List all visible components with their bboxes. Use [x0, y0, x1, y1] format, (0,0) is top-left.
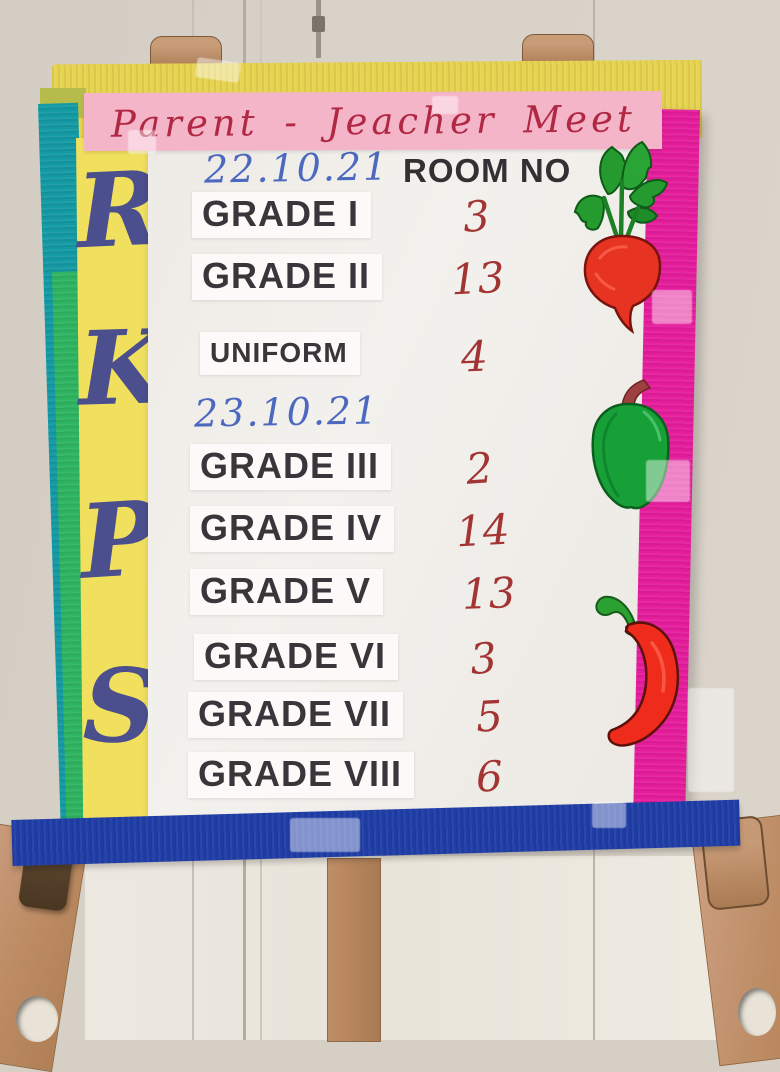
page-title: Parent - Jeacher Meet [110, 97, 635, 145]
room-number: 4 [460, 332, 488, 382]
initial-letter: K [77, 317, 156, 421]
tape-strip [652, 290, 692, 324]
room-number: 14 [455, 505, 511, 557]
schedule-row: GRADE VI 3 [148, 634, 662, 686]
grade-label: GRADE IV [190, 506, 394, 552]
schedule-row: UNIFORM 4 [148, 332, 662, 384]
room-number: 5 [475, 691, 504, 741]
tape-strip [290, 818, 360, 852]
tape-strip [688, 688, 734, 792]
schedule-row: GRADE IV 14 [148, 506, 662, 558]
tape-strip [128, 130, 156, 154]
schedule-row: GRADE VIII 6 [148, 752, 662, 804]
tape-strip [646, 460, 690, 502]
grade-label: GRADE VIII [188, 752, 414, 798]
easel-center-strut [327, 858, 381, 1042]
initial-letter: P [77, 487, 159, 594]
radish-leaf [575, 196, 604, 230]
grade-label: GRADE V [190, 569, 383, 615]
grade-label: GRADE VI [194, 634, 398, 680]
grade-label: UNIFORM [200, 332, 360, 375]
initial-letter: R [74, 158, 155, 263]
initials-strip: R K P S [76, 137, 159, 838]
date-day1: 22.10.21 [204, 144, 390, 191]
tape-strip [432, 96, 458, 114]
scene: R K P S Parent - Jeacher Meet 22.10.21 R… [0, 0, 780, 1040]
grade-label: GRADE VII [188, 692, 403, 738]
schedule-row: GRADE V 13 [148, 569, 662, 621]
schedule-row: GRADE VII 5 [148, 692, 662, 744]
door-hinge-cap [312, 16, 325, 32]
date-day2: 23.10.21 [194, 388, 380, 435]
easel-peg-hole-right [738, 988, 776, 1036]
radish-bulb [585, 236, 660, 331]
chili-icon [590, 583, 692, 751]
room-number: 13 [450, 253, 506, 305]
room-number: 13 [461, 568, 516, 619]
room-number: 3 [461, 191, 491, 242]
door-panel [85, 856, 780, 1040]
grade-label: GRADE II [192, 254, 382, 300]
tape-strip [592, 802, 626, 828]
room-number: 6 [475, 752, 503, 802]
grade-label: GRADE I [192, 192, 371, 238]
grade-label: GRADE III [190, 444, 391, 490]
easel-peg-hole-left [16, 996, 58, 1042]
room-no-header: ROOM NO [403, 152, 571, 190]
chili-body [609, 623, 678, 746]
room-number: 3 [468, 633, 499, 684]
room-number: 2 [464, 443, 494, 494]
schedule-row: GRADE III 2 [148, 444, 662, 496]
